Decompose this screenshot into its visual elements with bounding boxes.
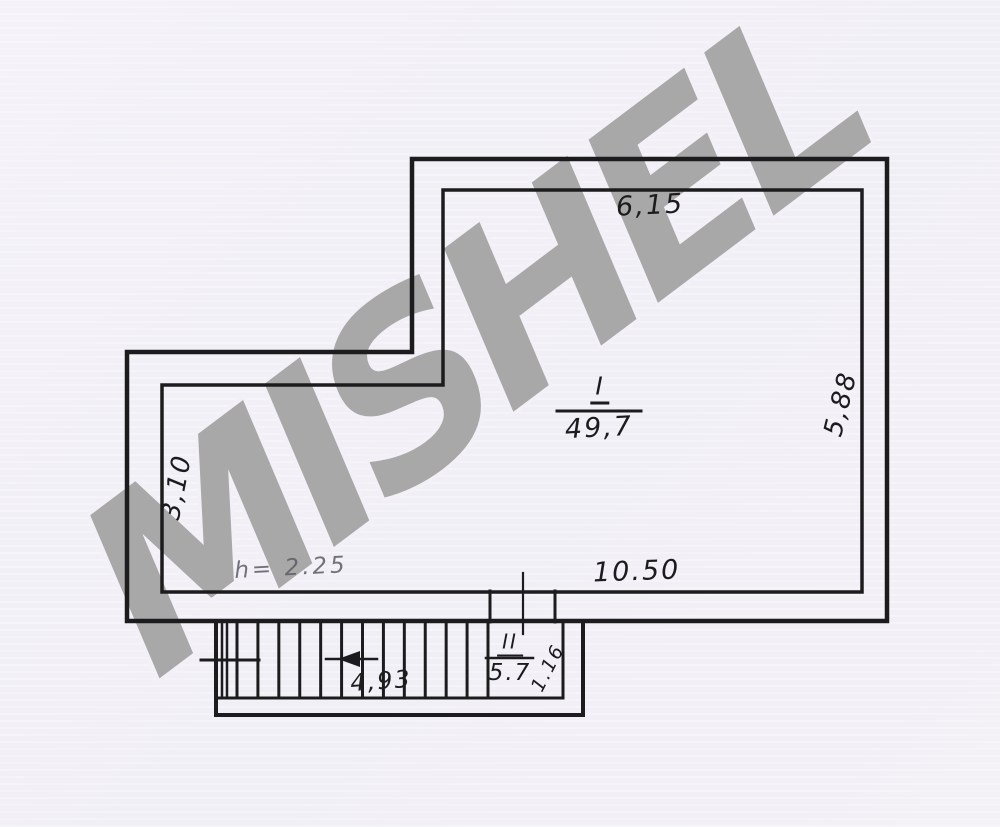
dimension-bottom: 10.50 xyxy=(592,554,680,588)
outer-wall xyxy=(127,159,887,621)
room1-area: 49,7 xyxy=(564,411,634,446)
room2-number: II xyxy=(497,630,523,657)
dimension-top: 6,15 xyxy=(615,188,685,223)
room2-area: 5.7 xyxy=(489,660,532,686)
room1-number: I xyxy=(590,372,609,405)
scanned-floor-plan: MISHEL xyxy=(0,0,1000,827)
stair-run-dimension: 4,93 xyxy=(349,665,412,697)
inner-wall xyxy=(162,190,862,592)
